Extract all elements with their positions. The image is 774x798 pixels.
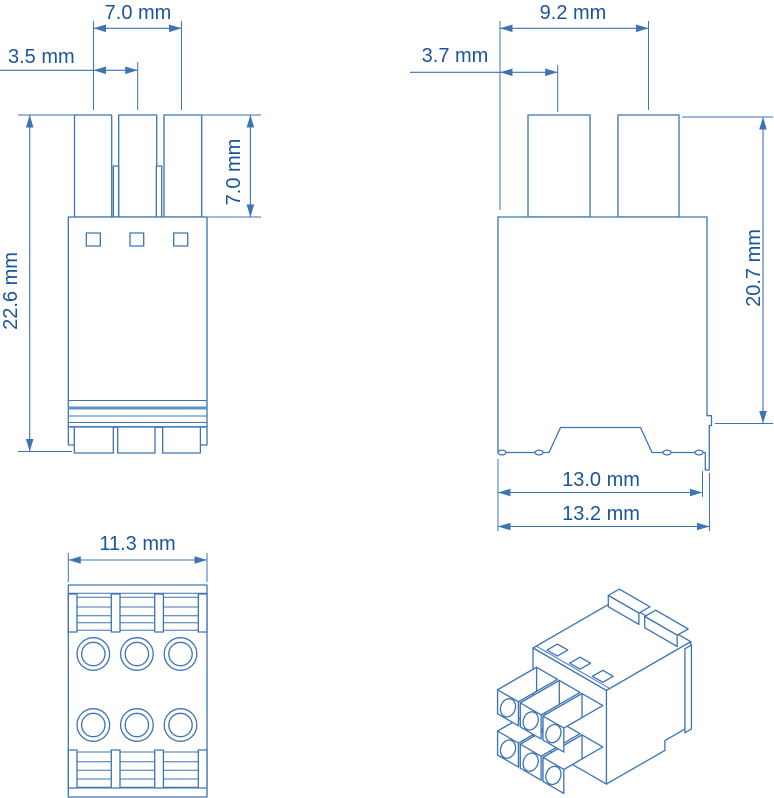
rail-tab [111, 750, 120, 788]
pin [528, 115, 590, 217]
foot-bump [535, 450, 543, 455]
pin-gap-detail [113, 166, 118, 217]
dim-label-side-overall-depth: 13.2 mm [562, 503, 640, 525]
foot-bump [663, 450, 671, 455]
dim-label-side-body-depth: 13.0 mm [562, 469, 640, 491]
connector-body-side [498, 217, 712, 470]
pin [164, 115, 202, 217]
front-view: 7.0 mm 3.5 mm 22.6 mm 7.0 mm [0, 2, 261, 453]
dim-label-front-overall-height: 22.6 mm [0, 252, 22, 330]
connector-body-bottom [68, 585, 207, 797]
rail-tab [68, 750, 77, 788]
foot [118, 427, 155, 453]
front-view-feet [68, 427, 207, 453]
side-stub [200, 427, 207, 445]
foot [163, 427, 201, 453]
dim-side-pin-offset: 3.7 mm [410, 45, 558, 112]
pin [75, 115, 112, 217]
front-view-pins [75, 115, 202, 217]
dim-front-pin-height: 7.0 mm [202, 115, 261, 217]
rail-tab [198, 750, 207, 788]
pin [618, 115, 679, 217]
drawing-svg: 7.0 mm 3.5 mm 22.6 mm 7.0 mm [0, 0, 774, 798]
bottom-view: 11.3 mm [68, 533, 207, 797]
side-view-pins [528, 115, 679, 217]
isometric-view [498, 589, 692, 793]
technical-drawing-canvas: 7.0 mm 3.5 mm 22.6 mm 7.0 mm [0, 0, 774, 798]
pin [119, 115, 157, 217]
dim-front-overall-height: 22.6 mm [0, 115, 75, 452]
dim-bottom-width: 11.3 mm [68, 533, 207, 582]
rail-tab [68, 594, 77, 632]
rail-tab [155, 750, 164, 788]
dim-label-front-pin-span: 7.0 mm [105, 2, 172, 24]
dim-label-side-pin-offset: 3.7 mm [422, 45, 489, 67]
dim-label-front-pin-pitch: 3.5 mm [8, 46, 75, 68]
iso-side-rib [685, 645, 692, 733]
rail-tab [111, 594, 120, 632]
connector-body-front [68, 217, 207, 427]
pin-gap-detail [156, 166, 161, 217]
dim-label-side-pin-span: 9.2 mm [540, 2, 607, 24]
foot [74, 427, 113, 453]
dim-label-bottom-width: 11.3 mm [99, 533, 175, 555]
rail-tab [155, 594, 164, 632]
foot-bump [695, 450, 703, 455]
side-view: 9.2 mm 3.7 mm 20.7 mm 13.0 mm 13.2 mm [410, 2, 773, 531]
foot-bump [498, 450, 506, 455]
rail-tab [198, 594, 207, 632]
dim-label-front-pin-height: 7.0 mm [223, 139, 245, 206]
dim-label-side-body-height: 20.7 mm [743, 229, 765, 307]
dim-front-pin-pitch: 3.5 mm [0, 46, 138, 110]
